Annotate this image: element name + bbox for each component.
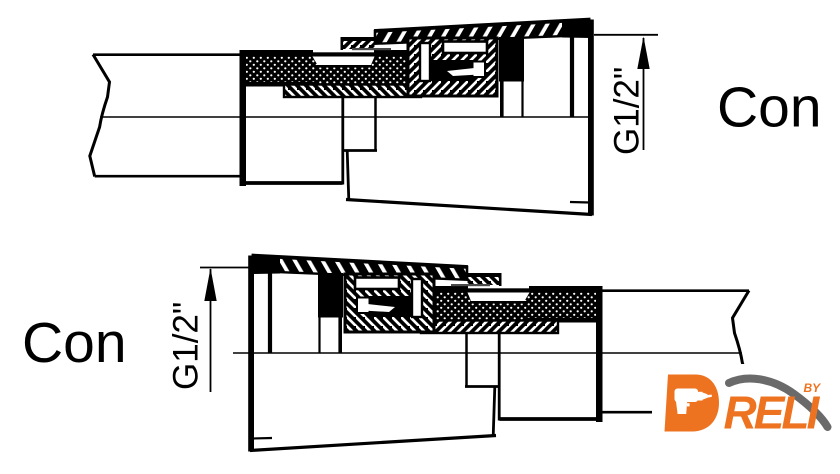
svg-text:G1/2": G1/2" [608,67,647,155]
svg-text:Con: Con [22,311,127,375]
svg-text:G1/2": G1/2" [167,302,206,390]
svg-text:BY: BY [804,381,822,395]
svg-text:Con: Con [717,76,822,140]
